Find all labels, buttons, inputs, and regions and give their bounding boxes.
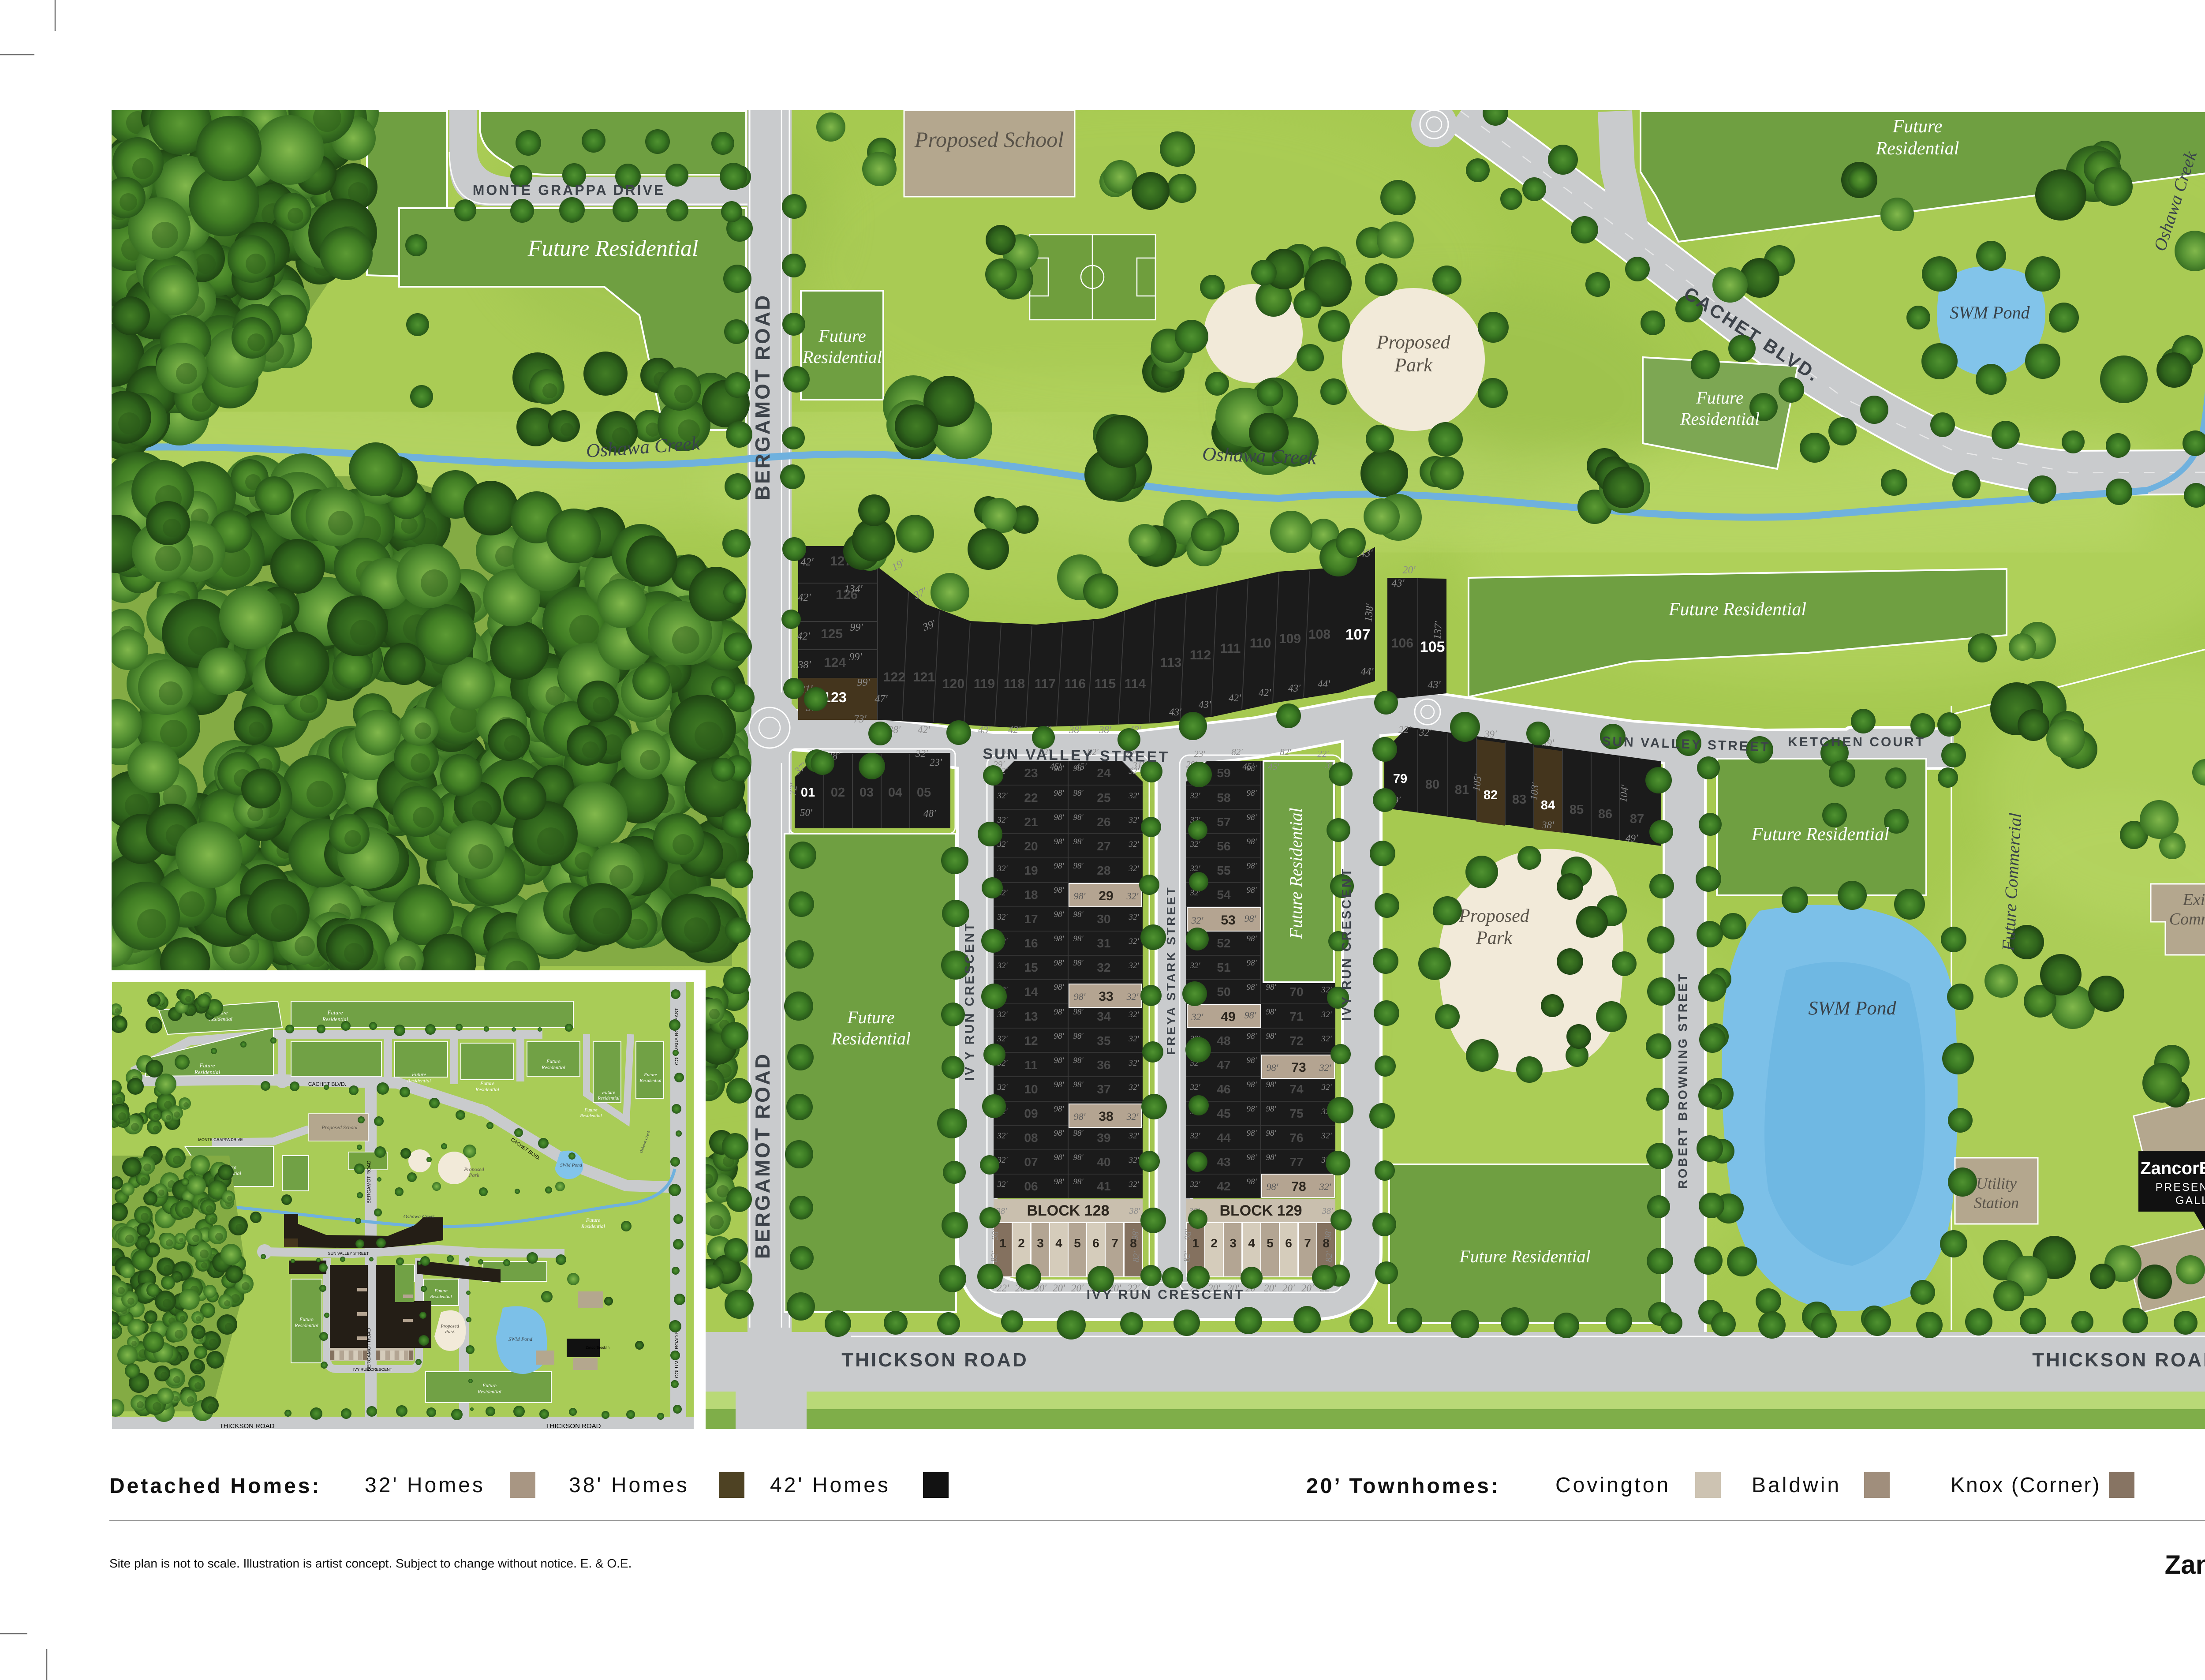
svg-text:43': 43'	[1288, 683, 1301, 694]
svg-text:32': 32'	[1128, 937, 1139, 946]
svg-text:Future Residential: Future Residential	[527, 236, 699, 261]
svg-text:32': 32'	[1319, 1181, 1331, 1192]
svg-text:32': 32'	[997, 816, 1008, 825]
svg-text:112: 112	[1190, 648, 1211, 662]
svg-text:32': 32'	[1128, 1131, 1139, 1141]
svg-text:32': 32'	[1128, 1059, 1139, 1068]
svg-text:71: 71	[1289, 1010, 1303, 1023]
svg-text:32': 32'	[1128, 816, 1139, 825]
svg-text:32': 32'	[1128, 961, 1139, 970]
svg-text:98': 98'	[1074, 991, 1086, 1002]
svg-text:32': 32'	[1321, 1010, 1332, 1019]
svg-text:99': 99'	[850, 622, 863, 633]
svg-text:98': 98'	[1073, 789, 1084, 798]
svg-text:45': 45'	[1242, 761, 1254, 772]
svg-text:98': 98'	[1246, 837, 1257, 846]
svg-text:15: 15	[1024, 961, 1038, 974]
svg-text:98': 98'	[1073, 837, 1084, 846]
svg-text:87: 87	[1630, 812, 1644, 826]
svg-text:98': 98'	[1266, 1080, 1276, 1089]
svg-text:23': 23'	[1194, 748, 1205, 759]
svg-text:49: 49	[1221, 1010, 1235, 1024]
svg-text:IVY RUN CRESCENT: IVY RUN CRESCENT	[1087, 1287, 1245, 1302]
svg-text:98': 98'	[1054, 1129, 1064, 1138]
svg-text:98': 98'	[1073, 958, 1084, 968]
svg-text:31: 31	[1097, 936, 1110, 950]
svg-text:6: 6	[1285, 1236, 1292, 1250]
svg-text:98': 98'	[1245, 1010, 1256, 1021]
svg-text:33: 33	[1099, 989, 1113, 1004]
svg-text:122: 122	[883, 670, 905, 685]
svg-text:79: 79	[1393, 772, 1407, 786]
svg-text:58: 58	[1217, 791, 1230, 804]
svg-text:43': 43'	[1428, 679, 1441, 691]
svg-text:109: 109	[1279, 632, 1301, 646]
svg-text:46: 46	[1217, 1082, 1230, 1096]
svg-text:59: 59	[1217, 766, 1230, 780]
svg-text:120: 120	[942, 677, 964, 691]
svg-text:23: 23	[1024, 766, 1038, 780]
svg-text:THICKSON ROAD: THICKSON ROAD	[2032, 1349, 2205, 1371]
svg-text:98': 98'	[1054, 1153, 1064, 1162]
svg-text:SWM Pond: SWM Pond	[560, 1163, 582, 1168]
svg-text:44': 44'	[1318, 678, 1330, 689]
svg-text:104': 104'	[1618, 784, 1630, 803]
svg-text:32': 32'	[1191, 1011, 1203, 1022]
svg-text:22: 22	[1024, 791, 1038, 804]
svg-text:48': 48'	[923, 808, 936, 819]
svg-text:BERGAMOT ROAD: BERGAMOT ROAD	[751, 1052, 774, 1259]
svg-text:98': 98'	[1246, 1104, 1257, 1114]
svg-text:30: 30	[1097, 912, 1110, 926]
svg-text:44': 44'	[1360, 666, 1374, 677]
svg-text:28: 28	[1097, 864, 1110, 877]
svg-text:32': 32'	[1128, 1083, 1139, 1092]
svg-text:42' Homes: 42' Homes	[770, 1474, 890, 1497]
svg-text:98': 98'	[1246, 1153, 1257, 1162]
svg-text:82': 82'	[1131, 1251, 1142, 1263]
svg-text:Proposed School: Proposed School	[321, 1124, 358, 1130]
svg-text:Detached Homes:: Detached Homes:	[109, 1474, 321, 1498]
svg-text:44: 44	[1217, 1131, 1231, 1145]
svg-text:20’ Townhomes:: 20’ Townhomes:	[1306, 1474, 1500, 1498]
svg-text:42: 42	[1217, 1179, 1230, 1193]
svg-text:19: 19	[1024, 864, 1038, 877]
svg-text:05: 05	[917, 786, 931, 800]
svg-text:98': 98'	[1054, 983, 1064, 992]
svg-text:20: 20	[1024, 839, 1038, 853]
svg-text:121: 121	[913, 670, 935, 685]
svg-text:98': 98'	[1246, 813, 1257, 822]
svg-text:78: 78	[1291, 1179, 1306, 1194]
svg-text:32': 32'	[1189, 1180, 1200, 1189]
svg-text:02: 02	[831, 786, 845, 800]
svg-text:99': 99'	[849, 651, 862, 663]
svg-text:4: 4	[1248, 1236, 1255, 1250]
svg-text:BLOCK 128: BLOCK 128	[1027, 1202, 1109, 1219]
svg-text:Oshawa Creek: Oshawa Creek	[404, 1213, 435, 1220]
svg-text:98': 98'	[1266, 1032, 1276, 1041]
svg-text:98': 98'	[1054, 1007, 1064, 1017]
svg-text:1: 1	[999, 1236, 1006, 1250]
svg-text:85: 85	[1570, 803, 1584, 817]
svg-text:ZancorBrooklin: ZancorBrooklin	[586, 1346, 609, 1350]
svg-text:138': 138'	[1363, 603, 1376, 622]
svg-text:82: 82	[1484, 788, 1498, 802]
svg-text:Future Residential: Future Residential	[1286, 808, 1306, 939]
svg-text:22': 22'	[1317, 748, 1329, 759]
svg-text:IVY RUN CRESCENT: IVY RUN CRESCENT	[1340, 867, 1354, 1021]
svg-text:110: 110	[1250, 636, 1271, 651]
svg-text:42': 42'	[797, 631, 810, 642]
svg-text:32': 32'	[1128, 1180, 1139, 1189]
svg-text:Oshawa Creek: Oshawa Creek	[1202, 443, 1317, 469]
svg-text:42': 42'	[800, 557, 814, 568]
svg-text:38: 38	[1099, 1109, 1113, 1124]
svg-text:32': 32'	[997, 791, 1008, 801]
svg-text:3: 3	[1037, 1236, 1044, 1250]
svg-text:32': 32'	[1189, 1131, 1200, 1141]
svg-text:115: 115	[1095, 677, 1116, 691]
svg-text:111: 111	[1220, 641, 1241, 656]
svg-text:26: 26	[1097, 815, 1110, 829]
svg-text:40: 40	[1097, 1155, 1110, 1169]
svg-text:SUN VALLEY STREET: SUN VALLEY STREET	[983, 745, 1170, 765]
svg-text:42': 42'	[1229, 692, 1241, 703]
svg-text:32': 32'	[1189, 864, 1200, 873]
svg-text:43': 43'	[1199, 699, 1211, 710]
svg-text:77: 77	[1289, 1155, 1303, 1169]
svg-text:01: 01	[801, 786, 815, 800]
svg-text:THICKSON ROAD: THICKSON ROAD	[219, 1422, 274, 1430]
svg-text:BERGAMOT ROAD: BERGAMOT ROAD	[366, 1328, 372, 1371]
svg-text:21: 21	[1024, 815, 1038, 829]
svg-text:98': 98'	[1054, 813, 1064, 822]
svg-text:03: 03	[860, 786, 874, 800]
svg-text:22': 22'	[1398, 724, 1411, 735]
svg-text:32': 32'	[1126, 1111, 1139, 1122]
svg-text:GALLERY: GALLERY	[2175, 1194, 2205, 1207]
svg-text:98': 98'	[1054, 1032, 1064, 1041]
svg-text:42': 42'	[1259, 687, 1271, 698]
svg-text:98': 98'	[1266, 1104, 1276, 1114]
svg-text:Baldwin: Baldwin	[1752, 1474, 1841, 1497]
svg-text:98': 98'	[1074, 891, 1086, 902]
svg-text:ROBERT BROWNING STREET: ROBERT BROWNING STREET	[1676, 973, 1689, 1189]
svg-text:32' Homes: 32' Homes	[365, 1474, 485, 1497]
svg-text:98': 98'	[1073, 861, 1084, 871]
svg-text:32': 32'	[1128, 913, 1139, 922]
svg-text:24: 24	[1097, 766, 1111, 780]
svg-text:76: 76	[1289, 1131, 1303, 1145]
svg-text:43: 43	[1217, 1155, 1230, 1169]
svg-text:98': 98'	[1073, 1153, 1084, 1162]
svg-text:98': 98'	[1073, 1007, 1084, 1017]
svg-text:18: 18	[1024, 888, 1038, 902]
svg-text:BERGAMOT ROAD: BERGAMOT ROAD	[366, 1160, 372, 1204]
svg-text:98': 98'	[1054, 861, 1064, 871]
svg-text:32': 32'	[1126, 891, 1139, 902]
svg-text:98': 98'	[1054, 789, 1064, 798]
svg-text:82': 82'	[1324, 1251, 1334, 1263]
svg-text:06: 06	[1024, 1179, 1038, 1193]
svg-text:82': 82'	[1280, 747, 1291, 757]
svg-text:98': 98'	[1054, 886, 1064, 895]
svg-text:14: 14	[1024, 985, 1038, 999]
svg-text:41: 41	[1097, 1179, 1110, 1193]
svg-text:04: 04	[888, 786, 902, 800]
svg-text:Proposed School: Proposed School	[914, 127, 1064, 152]
svg-text:98': 98'	[1054, 837, 1064, 846]
svg-text:32': 32'	[1128, 791, 1139, 801]
svg-text:38': 38'	[1099, 724, 1112, 735]
svg-text:107: 107	[1345, 626, 1371, 643]
svg-text:32': 32'	[1189, 840, 1200, 849]
svg-text:98': 98'	[1323, 1229, 1334, 1241]
svg-text:98': 98'	[1267, 1062, 1278, 1073]
svg-text:2: 2	[1018, 1236, 1025, 1250]
svg-text:27: 27	[1097, 839, 1110, 853]
svg-text:32': 32'	[1128, 840, 1139, 849]
svg-text:THICKSON ROAD: THICKSON ROAD	[546, 1422, 601, 1430]
svg-text:Site plan is not to scale. Ill: Site plan is not to scale. Illustration …	[109, 1557, 632, 1570]
svg-text:99': 99'	[857, 677, 870, 688]
svg-text:20': 20'	[1301, 1283, 1314, 1294]
svg-text:32': 32'	[1128, 1156, 1139, 1165]
svg-text:ZancorBrooklin: ZancorBrooklin	[2140, 1159, 2205, 1178]
svg-text:THICKSON ROAD: THICKSON ROAD	[841, 1349, 1028, 1371]
svg-text:137': 137'	[1431, 621, 1445, 640]
svg-text:17: 17	[1024, 912, 1038, 926]
svg-text:98': 98'	[1073, 934, 1084, 943]
svg-text:98': 98'	[1245, 913, 1256, 924]
svg-text:73: 73	[1291, 1060, 1306, 1075]
svg-text:FREYA STARK STREET: FREYA STARK STREET	[1164, 886, 1178, 1055]
svg-text:32': 32'	[1319, 1062, 1331, 1073]
svg-text:98': 98'	[1074, 1111, 1086, 1122]
svg-text:98': 98'	[1246, 861, 1257, 871]
svg-text:55: 55	[1217, 864, 1230, 877]
svg-text:98': 98'	[1054, 1056, 1064, 1065]
svg-text:106: 106	[1391, 636, 1413, 651]
svg-text:124: 124	[824, 655, 846, 670]
svg-text:116: 116	[1065, 677, 1086, 691]
svg-text:32': 32'	[1128, 1034, 1139, 1044]
svg-text:86: 86	[1598, 807, 1612, 821]
svg-text:Covington: Covington	[1555, 1474, 1671, 1497]
svg-text:23': 23'	[930, 757, 942, 768]
svg-text:82': 82'	[989, 1251, 1000, 1263]
svg-text:73': 73'	[853, 714, 867, 725]
svg-text:119: 119	[974, 677, 995, 691]
svg-text:SWM Pond: SWM Pond	[1950, 303, 2030, 322]
svg-text:98': 98'	[1246, 1177, 1257, 1186]
svg-text:98': 98'	[1183, 1229, 1193, 1241]
svg-text:Future Residential: Future Residential	[1668, 599, 1806, 620]
svg-text:09: 09	[1024, 1107, 1038, 1120]
svg-text:98': 98'	[1073, 1129, 1084, 1138]
svg-text:98': 98'	[1266, 1007, 1276, 1017]
svg-text:103': 103'	[1528, 782, 1541, 801]
svg-text:BERGAMOT ROAD: BERGAMOT ROAD	[751, 294, 774, 501]
svg-text:98': 98'	[1054, 910, 1064, 919]
svg-text:16: 16	[1024, 936, 1038, 950]
svg-text:47: 47	[1217, 1058, 1230, 1072]
svg-text:57: 57	[1217, 815, 1230, 829]
svg-text:50': 50'	[800, 807, 813, 818]
svg-text:SWM Pond: SWM Pond	[508, 1336, 533, 1342]
svg-text:117: 117	[1035, 677, 1056, 691]
svg-text:108: 108	[1308, 627, 1330, 642]
svg-text:98': 98'	[1054, 1080, 1064, 1089]
svg-text:25: 25	[1097, 791, 1110, 804]
svg-text:98': 98'	[990, 1229, 1001, 1241]
svg-text:3: 3	[1230, 1236, 1237, 1250]
svg-text:20': 20'	[1282, 1283, 1295, 1294]
svg-text:PRESENTATION: PRESENTATION	[2156, 1181, 2205, 1194]
svg-text:32': 32'	[997, 1131, 1008, 1141]
svg-text:29: 29	[1099, 889, 1113, 903]
svg-text:5: 5	[1267, 1236, 1274, 1250]
svg-text:38': 38'	[1322, 1206, 1333, 1216]
svg-text:98': 98'	[1266, 1129, 1276, 1138]
svg-text:6: 6	[1092, 1236, 1099, 1250]
svg-text:98': 98'	[1246, 958, 1257, 968]
svg-text:98': 98'	[1073, 1177, 1084, 1186]
svg-text:113: 113	[1160, 655, 1181, 670]
svg-text:98': 98'	[1246, 789, 1257, 798]
svg-text:52: 52	[1217, 936, 1230, 950]
svg-text:36: 36	[1097, 1058, 1110, 1072]
svg-text:45: 45	[1217, 1107, 1230, 1120]
svg-text:5: 5	[1074, 1236, 1081, 1250]
svg-text:37: 37	[1097, 1082, 1110, 1096]
svg-text:1: 1	[1192, 1236, 1199, 1250]
svg-text:38': 38'	[1069, 724, 1082, 735]
svg-text:Future Residential: Future Residential	[1459, 1246, 1590, 1266]
svg-text:80: 80	[1425, 778, 1439, 792]
svg-text:72: 72	[1289, 1034, 1303, 1048]
svg-text:11: 11	[1024, 1058, 1038, 1072]
svg-text:98': 98'	[1130, 1229, 1141, 1241]
svg-text:32': 32'	[1128, 1010, 1139, 1019]
svg-text:08: 08	[1024, 1131, 1038, 1145]
svg-text:32': 32'	[1321, 1131, 1332, 1141]
svg-text:32': 32'	[997, 913, 1008, 922]
svg-text:34: 34	[1097, 1010, 1111, 1023]
svg-text:32': 32'	[1126, 991, 1139, 1002]
svg-text:43': 43'	[978, 724, 991, 735]
svg-text:42': 42'	[1008, 724, 1021, 735]
svg-text:70: 70	[1289, 985, 1303, 999]
svg-text:98': 98'	[1246, 886, 1257, 895]
svg-text:Future Residential: Future Residential	[1751, 824, 1889, 845]
svg-text:32': 32'	[1191, 915, 1203, 926]
svg-text:53: 53	[1221, 913, 1235, 928]
svg-text:74: 74	[1289, 1082, 1304, 1096]
svg-text:32': 32'	[997, 1034, 1008, 1044]
svg-text:BLOCK 129: BLOCK 129	[1219, 1202, 1302, 1219]
svg-text:32': 32'	[997, 961, 1008, 970]
svg-text:32': 32'	[997, 1010, 1008, 1019]
svg-text:75: 75	[1289, 1107, 1303, 1120]
svg-text:98': 98'	[1073, 1032, 1084, 1041]
svg-text:98': 98'	[1267, 1181, 1278, 1192]
svg-text:SWM Pond: SWM Pond	[1808, 997, 1896, 1019]
svg-text:07: 07	[1024, 1155, 1038, 1169]
svg-text:118: 118	[1004, 677, 1025, 691]
svg-text:39: 39	[1097, 1131, 1110, 1145]
svg-text:38': 38'	[1541, 819, 1555, 831]
svg-text:98': 98'	[1246, 1056, 1257, 1065]
svg-text:98': 98'	[1073, 1056, 1084, 1065]
svg-text:32': 32'	[1128, 864, 1139, 873]
svg-text:20': 20'	[1402, 565, 1416, 576]
svg-text:32': 32'	[1189, 961, 1200, 970]
svg-text:32': 32'	[1419, 727, 1432, 738]
svg-text:MONTE GRAPPA DRIVE: MONTE GRAPPA DRIVE	[473, 182, 665, 198]
svg-text:7: 7	[1111, 1236, 1118, 1250]
svg-text:56: 56	[1217, 839, 1230, 853]
svg-text:42': 42'	[918, 724, 931, 735]
svg-text:48: 48	[1217, 1034, 1230, 1048]
svg-text:84: 84	[1541, 798, 1555, 812]
svg-text:98': 98'	[1073, 1080, 1084, 1089]
svg-text:32': 32'	[1321, 1083, 1332, 1092]
svg-text:98': 98'	[1246, 1129, 1257, 1138]
svg-text:20': 20'	[1071, 1283, 1084, 1294]
svg-text:98': 98'	[1266, 983, 1276, 992]
svg-text:83: 83	[1512, 793, 1526, 807]
svg-text:105: 105	[1420, 639, 1445, 655]
svg-text:35: 35	[1097, 1034, 1110, 1048]
svg-text:98': 98'	[1266, 1153, 1276, 1162]
svg-text:ZancorBrooklin: ZancorBrooklin	[2165, 1550, 2205, 1579]
svg-text:134': 134'	[844, 584, 863, 595]
svg-text:KETCHEN COURT: KETCHEN COURT	[1788, 735, 1925, 749]
svg-text:4: 4	[1055, 1236, 1062, 1250]
svg-text:43': 43'	[1391, 578, 1405, 589]
svg-text:Knox (Corner): Knox (Corner)	[1951, 1474, 2100, 1497]
svg-text:38': 38'	[1129, 1206, 1140, 1216]
svg-text:32': 32'	[1321, 1034, 1332, 1044]
svg-text:82': 82'	[1182, 1251, 1192, 1263]
svg-text:32': 32'	[997, 1180, 1008, 1189]
svg-text:38' Homes: 38' Homes	[569, 1474, 689, 1497]
svg-text:42': 42'	[798, 592, 811, 603]
svg-text:105': 105'	[1471, 773, 1484, 792]
svg-text:82': 82'	[1231, 747, 1243, 757]
svg-text:49': 49'	[1626, 833, 1638, 844]
svg-text:7: 7	[1304, 1236, 1311, 1250]
svg-text:32': 32'	[1189, 791, 1200, 801]
svg-text:20': 20'	[1264, 1283, 1277, 1294]
svg-text:114: 114	[1125, 677, 1146, 691]
svg-text:98': 98'	[1073, 813, 1084, 822]
svg-text:32': 32'	[915, 748, 928, 759]
svg-text:98': 98'	[1246, 1032, 1257, 1041]
svg-text:32': 32'	[997, 864, 1008, 873]
svg-text:COLUMBUS ROAD EAST: COLUMBUS ROAD EAST	[674, 1008, 680, 1065]
svg-text:10: 10	[1024, 1082, 1038, 1096]
svg-text:54: 54	[1217, 888, 1231, 902]
svg-text:98': 98'	[1054, 958, 1064, 968]
svg-text:47': 47'	[875, 693, 888, 705]
svg-text:98': 98'	[1054, 934, 1064, 943]
svg-text:39': 39'	[1484, 729, 1497, 740]
svg-text:IVY RUN CRESCENT: IVY RUN CRESCENT	[353, 1367, 392, 1372]
svg-text:20': 20'	[1053, 1283, 1065, 1294]
